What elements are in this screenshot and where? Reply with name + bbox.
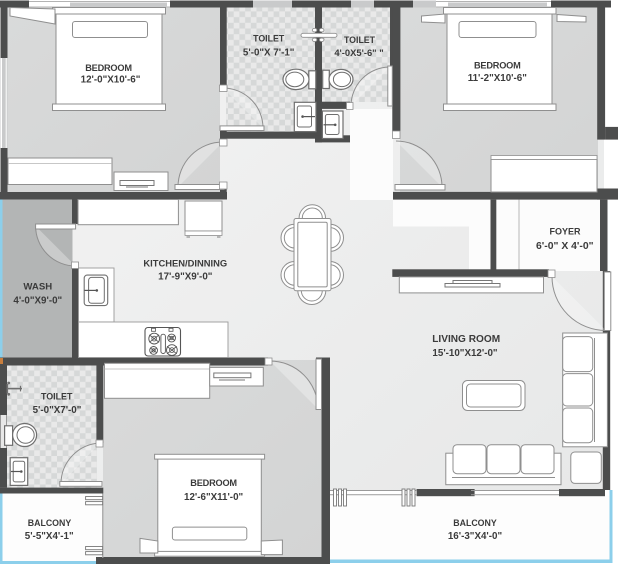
svg-text:16'-3"X4'-0": 16'-3"X4'-0" — [448, 531, 502, 542]
svg-text:KITCHEN/DINNING: KITCHEN/DINNING — [143, 257, 227, 268]
svg-text:BALCONY: BALCONY — [28, 518, 72, 528]
svg-text:WASH: WASH — [23, 282, 52, 293]
svg-text:15'-10"X12'-0": 15'-10"X12'-0" — [432, 348, 497, 359]
svg-text:12'-6"X11'-0": 12'-6"X11'-0" — [184, 492, 243, 503]
svg-text:4'-0"X9'-0": 4'-0"X9'-0" — [13, 296, 62, 307]
svg-text:11'-2"X10'-6": 11'-2"X10'-6" — [468, 73, 527, 84]
svg-text:BEDROOM: BEDROOM — [474, 60, 521, 70]
svg-text:BEDROOM: BEDROOM — [190, 478, 237, 488]
svg-text:BALCONY: BALCONY — [453, 518, 497, 528]
svg-text:4'-0X5'-6" ": 4'-0X5'-6" " — [334, 47, 383, 58]
svg-text:6'-0" X 4'-0": 6'-0" X 4'-0" — [536, 241, 594, 252]
svg-text:FOYER: FOYER — [549, 227, 581, 237]
svg-text:TOILET: TOILET — [41, 391, 73, 401]
svg-text:TOILET: TOILET — [253, 33, 285, 43]
svg-text:12'-0"X10'-6": 12'-0"X10'-6" — [81, 74, 141, 85]
svg-text:TOILET: TOILET — [344, 35, 376, 45]
svg-text:17'-9"X9'-0": 17'-9"X9'-0" — [158, 272, 212, 283]
svg-text:5'-0"X7'-0": 5'-0"X7'-0" — [33, 405, 82, 416]
svg-text:5'-0"X 7'-1": 5'-0"X 7'-1" — [243, 48, 295, 59]
svg-text:BEDROOM: BEDROOM — [85, 63, 132, 73]
svg-text:LIVING ROOM: LIVING ROOM — [432, 334, 500, 345]
svg-text:5'-5"X4'-1": 5'-5"X4'-1" — [25, 531, 74, 542]
